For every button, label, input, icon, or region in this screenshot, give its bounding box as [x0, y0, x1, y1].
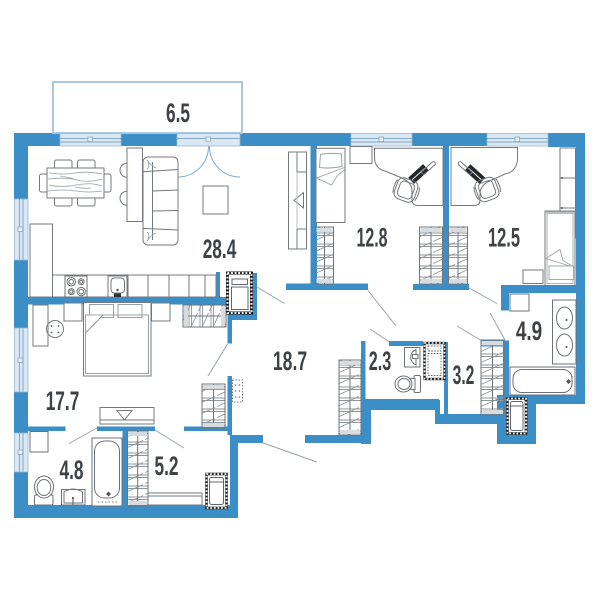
svg-text:12.8: 12.8 — [357, 222, 388, 252]
svg-text:28.4: 28.4 — [203, 233, 237, 264]
svg-text:2.3: 2.3 — [369, 346, 392, 376]
svg-text:18.7: 18.7 — [273, 345, 307, 376]
svg-text:12.5: 12.5 — [488, 222, 520, 252]
svg-text:4.8: 4.8 — [59, 454, 83, 485]
svg-text:17.7: 17.7 — [46, 385, 80, 416]
svg-text:6.5: 6.5 — [166, 97, 190, 128]
svg-text:5.2: 5.2 — [154, 450, 178, 481]
svg-text:3.2: 3.2 — [453, 360, 475, 391]
svg-text:4.9: 4.9 — [516, 316, 542, 346]
